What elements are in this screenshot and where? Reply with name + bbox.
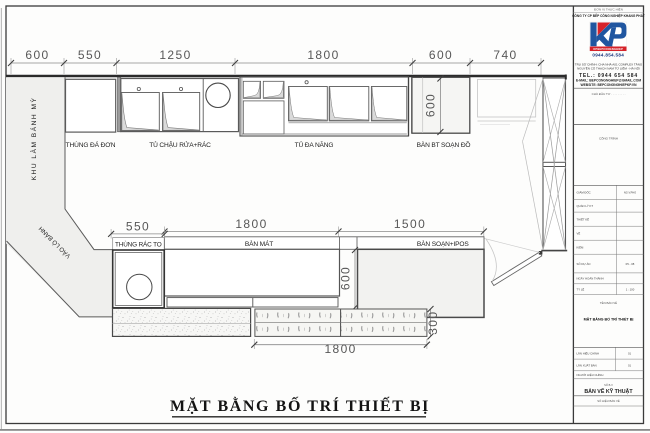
svg-text:CÔNG TRÌNH: CÔNG TRÌNH xyxy=(599,136,618,141)
svg-text:600: 600 xyxy=(25,48,49,62)
svg-text:01: 01 xyxy=(628,363,632,367)
svg-text:TỦ ĐA NĂNG: TỦ ĐA NĂNG xyxy=(295,140,334,149)
svg-text:BÀN MÁT: BÀN MÁT xyxy=(245,239,273,248)
svg-text:NGUYỄN CỔ THẠCH NAM TỪ LIÊM -: NGUYỄN CỔ THẠCH NAM TỪ LIÊM - HÀ NỘI xyxy=(577,65,640,70)
svg-text:BẢN VẼ KỸ THUẬT: BẢN VẼ KỸ THUẬT xyxy=(584,388,633,395)
svg-text:TỦ CHẬU RỬA+RÁC: TỦ CHẬU RỬA+RÁC xyxy=(149,140,211,149)
svg-text:VẼ: VẼ xyxy=(577,231,581,236)
svg-text:TỶ LỆ: TỶ LỆ xyxy=(577,286,585,291)
svg-text:NGƯỜI HIỆU CHỈNH: NGƯỜI HIỆU CHỈNH xyxy=(577,372,604,377)
svg-text:WEBSITE: BEPCONGNGHIEPKP.VN: WEBSITE: BEPCONGNGHIEPKP.VN xyxy=(581,83,638,87)
svg-text:300: 300 xyxy=(426,311,440,335)
svg-text:MẶT BẰNG BỐ TRÍ THIẾT BỊ: MẶT BẰNG BỐ TRÍ THIẾT BỊ xyxy=(170,395,430,415)
svg-text:550: 550 xyxy=(126,220,150,234)
svg-text:1800: 1800 xyxy=(307,48,339,62)
svg-text:KHU LÀM BÁNH MỲ: KHU LÀM BÁNH MỲ xyxy=(29,97,38,181)
svg-text:BÀN SOẠN+IPOS: BÀN SOẠN+IPOS xyxy=(417,239,469,248)
svg-text:1500: 1500 xyxy=(394,217,426,231)
svg-text:KPBEPCONGNGHIEP: KPBEPCONGNGHIEP xyxy=(593,47,623,51)
svg-text:MẶT BẰNG BỐ TRÍ THIẾT BỊ: MẶT BẰNG BỐ TRÍ THIẾT BỊ xyxy=(584,317,634,322)
svg-text:600: 600 xyxy=(429,48,453,62)
svg-text:GIÁM ĐỐC: GIÁM ĐỐC xyxy=(577,190,591,195)
svg-text:550: 550 xyxy=(78,48,102,62)
svg-text:1800: 1800 xyxy=(235,217,267,231)
svg-text:TÊN BẢN VẼ: TÊN BẢN VẼ xyxy=(600,300,617,305)
svg-text:1250: 1250 xyxy=(159,48,191,62)
svg-text:SỐ HIỆU BẢN VẼ: SỐ HIỆU BẢN VẼ xyxy=(597,398,620,403)
svg-text:740: 740 xyxy=(493,48,517,62)
svg-text:THÙNG RÁC TO: THÙNG RÁC TO xyxy=(115,240,162,249)
svg-text:600: 600 xyxy=(339,266,353,290)
svg-text:1800: 1800 xyxy=(324,342,356,356)
svg-text:01: 01 xyxy=(628,352,632,356)
svg-text:KIỂM: KIỂM xyxy=(577,245,585,250)
svg-text:05 - 08: 05 - 08 xyxy=(626,262,635,266)
svg-text:QUẢN LÝ KT: QUẢN LÝ KT xyxy=(577,203,594,208)
svg-text:LẦN XUẤT BẢN: LẦN XUẤT BẢN xyxy=(577,362,597,367)
svg-text:1 : 100: 1 : 100 xyxy=(626,287,635,291)
svg-text:THÙNG ĐÁ ĐƠN: THÙNG ĐÁ ĐƠN xyxy=(66,140,116,149)
svg-text:ĐƠN VỊ THỰC HIỆN: ĐƠN VỊ THỰC HIỆN xyxy=(594,7,623,12)
svg-text:0944.854.584: 0944.854.584 xyxy=(592,53,624,58)
svg-text:600: 600 xyxy=(424,93,438,117)
svg-text:CHỦ ĐẦU TƯ . . . . . . . . .: CHỦ ĐẦU TƯ . . . . . . . . . xyxy=(592,91,626,96)
svg-text:CÔNG TY CP BẾP CÔNG NGHIỆP KHA: CÔNG TY CP BẾP CÔNG NGHIỆP KHANG PHÁT xyxy=(572,13,645,18)
svg-text:NGÀY HOÀN THÀNH: NGÀY HOÀN THÀNH xyxy=(577,277,604,281)
svg-text:LẦN HIỆU CHỈNH: LẦN HIỆU CHỈNH xyxy=(577,351,600,356)
svg-text:SỐ DỰ ÁN: SỐ DỰ ÁN xyxy=(577,261,591,266)
svg-text:THIẾT KẾ: THIẾT KẾ xyxy=(577,217,590,222)
